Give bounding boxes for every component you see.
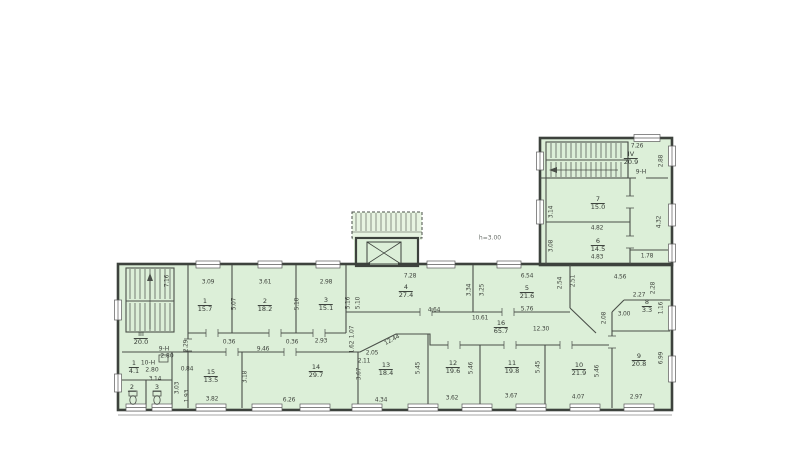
room-label-3: 315.1 xyxy=(319,297,333,313)
dimension: 3.82 xyxy=(206,396,219,403)
dimension: 6.99 xyxy=(658,352,665,365)
room-label-15: 1513.5 xyxy=(204,369,218,385)
dimension: 3.67 xyxy=(356,368,363,381)
stair-label-III: III20.0 xyxy=(134,331,148,347)
dimension: 4.56 xyxy=(614,274,627,281)
dimension: 2.29 xyxy=(183,340,190,353)
dimension: 2.08 xyxy=(601,312,608,325)
dimension: 3.14 xyxy=(548,206,555,219)
dimension: 12.30 xyxy=(533,326,549,333)
room-label-9: 920.8 xyxy=(632,353,646,369)
dimension: 3.18 xyxy=(242,371,249,384)
room-label-5: 521.6 xyxy=(520,285,534,301)
dimension: 5.10 xyxy=(294,298,301,311)
dimension: 9.46 xyxy=(257,346,270,353)
dimension: 3.08 xyxy=(548,240,555,253)
stair-label-IV: IV20.9 xyxy=(624,151,638,167)
dimension: 3.14 xyxy=(149,376,162,383)
dimension: 2.27 xyxy=(633,292,646,299)
dimension: 1.16 xyxy=(658,302,665,315)
room-label-14: 1429.7 xyxy=(309,364,323,380)
dimension: 2.05 xyxy=(366,350,379,357)
dimension: 5.07 xyxy=(231,298,238,311)
dimension: 10.61 xyxy=(472,315,488,322)
room-label-2: 218.2 xyxy=(258,298,272,314)
room-label-6: 614.5 xyxy=(591,238,605,254)
dimension: 5.46 xyxy=(594,365,601,378)
room-label-10: 1021.9 xyxy=(572,362,586,378)
dimension: 5.10 xyxy=(355,297,362,310)
dimension: 3.34 xyxy=(466,284,473,297)
unit-label-10n-left: 10-Н xyxy=(141,360,155,367)
dimension: 2.51 xyxy=(570,275,577,288)
dimension: 4.64 xyxy=(428,307,441,314)
dimension: 3.03 xyxy=(174,382,181,395)
room-label-8: 83.3 xyxy=(642,299,652,315)
dimension: 2.54 xyxy=(557,277,564,290)
room-label-7: 715.0 xyxy=(591,196,605,212)
dimension: 3.67 xyxy=(505,393,518,400)
dimension: 6.26 xyxy=(283,397,296,404)
dimension: 7.26 xyxy=(631,143,644,150)
room-label-11: 1119.8 xyxy=(505,360,519,376)
dimension: 1.78 xyxy=(641,253,654,260)
dimension: 0.84 xyxy=(181,366,194,373)
dimension: 5.46 xyxy=(468,362,475,375)
room-label-16-corridor: 1665.7 xyxy=(494,320,508,336)
dimension: 3.00 xyxy=(618,311,631,318)
dimension: 3.62 xyxy=(446,395,459,402)
dimension: 7.28 xyxy=(404,273,417,280)
dimension: 2.88 xyxy=(658,155,665,168)
dimension: 5.76 xyxy=(521,306,534,313)
dimension: 3.61 xyxy=(259,279,272,286)
dimension: 1.93 xyxy=(184,390,191,403)
dimension: 0.36 xyxy=(223,339,236,346)
dimension: 2.98 xyxy=(320,279,333,286)
room-label-13: 1318.4 xyxy=(379,362,393,378)
unit-value-10n-left: 2.80 xyxy=(145,367,158,374)
dimension: 5.45 xyxy=(415,362,422,375)
ceiling-height-note: h=3.00 xyxy=(479,235,501,242)
unit-label-9n-left: 9-Н xyxy=(159,346,170,353)
dimension: 4.82 xyxy=(591,225,604,232)
dimension: 5.45 xyxy=(535,361,542,374)
room-label-4: 427.4 xyxy=(399,284,413,300)
room-label-12: 1219.6 xyxy=(446,360,460,376)
dimension: 2.28 xyxy=(650,282,657,295)
dimension: 5.16 xyxy=(345,297,352,310)
room-label-wc-3: 3 xyxy=(153,384,161,392)
dimension: 2.11 xyxy=(358,358,371,365)
dimension: 6.54 xyxy=(521,273,534,280)
unit-label-9n-wing: 9-Н xyxy=(636,169,647,176)
dimension: 4.34 xyxy=(375,397,388,404)
dimension: 1.62 xyxy=(349,341,356,354)
dimension: 4.07 xyxy=(572,394,585,401)
room-label-1-small: 14.1 xyxy=(129,360,139,376)
floor-plan-drawing xyxy=(0,0,800,450)
dimension: 4.32 xyxy=(656,216,663,229)
floor-plan-scan: 115.7 218.2 315.1 427.4 521.6 614.5 715.… xyxy=(0,0,800,450)
dimension: 0.36 xyxy=(286,339,299,346)
dimension: 2.97 xyxy=(630,394,643,401)
dimension: 1.07 xyxy=(349,326,356,339)
dimension: 3.25 xyxy=(479,284,486,297)
floor-fill xyxy=(119,139,671,409)
unit-value-9n-left: 2.80 xyxy=(160,353,173,360)
room-label-wc-2: 2 xyxy=(128,384,136,392)
dimension: 2.93 xyxy=(315,338,328,345)
dimension: 7.16 xyxy=(164,275,171,288)
room-label-1: 115.7 xyxy=(198,298,212,314)
dimension: 4.83 xyxy=(591,254,604,261)
dimension: 3.09 xyxy=(202,279,215,286)
